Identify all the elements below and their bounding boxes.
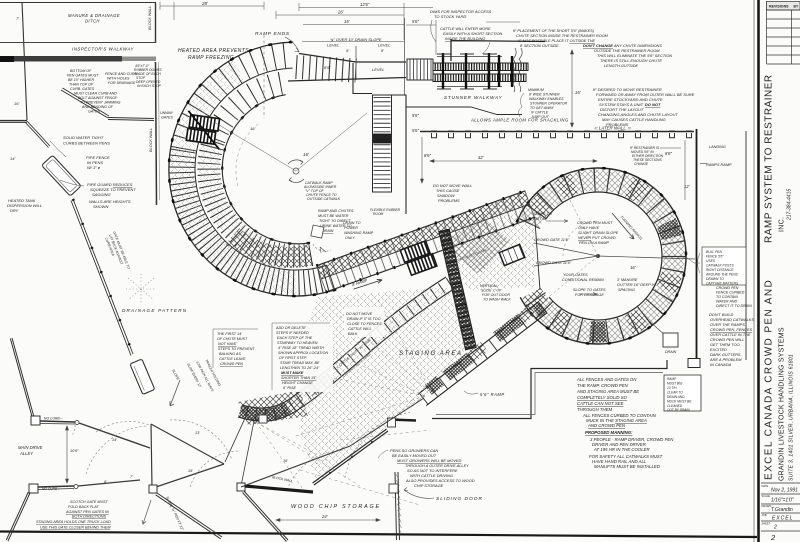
svg-text:CHANGE: CHANGE: [634, 162, 649, 166]
svg-text:ROOM: ROOM: [373, 212, 384, 216]
svg-text:DRAWN: DRAWN: [762, 504, 772, 508]
svg-text:IF PLACEMENT OF THE SHORT 5'6": IF PLACEMENT OF THE SHORT 5'6" (MAKES): [513, 29, 595, 33]
svg-text:BALK: BALK: [348, 332, 358, 336]
svg-text:OF CHUTE MUST: OF CHUTE MUST: [217, 337, 248, 341]
svg-text:SCALE: SCALE: [762, 494, 771, 498]
svg-text:7': 7': [130, 475, 133, 479]
svg-text:MUST BE WATER: MUST BE WATER: [318, 214, 349, 218]
svg-text:15': 15': [575, 90, 581, 95]
svg-text:AND CROWD PEN: AND CROWD PEN: [587, 423, 626, 428]
svg-text:GATES: GATES: [88, 110, 101, 114]
svg-text:GUTTER 16" DEEP 9': GUTTER 16" DEEP 9': [617, 283, 655, 287]
svg-text:LEVEL: LEVEL: [372, 67, 384, 72]
svg-text:DRAINAGE PATTERN: DRAINAGE PATTERN: [122, 308, 187, 313]
svg-text:16': 16': [303, 152, 309, 157]
svg-text:EACH STEP OF THE: EACH STEP OF THE: [277, 336, 313, 340]
svg-text:BULL PEN: BULL PEN: [706, 250, 723, 254]
svg-text:MANLIFTS MUST BE INSTALLED: MANLIFTS MUST BE INSTALLED: [594, 464, 660, 469]
svg-text:DIRECT IT TO DRAIN: DIRECT IT TO DRAIN: [716, 304, 752, 308]
svg-text:4" RISE 18" TREAD WIDTH: 4" RISE 18" TREAD WIDTH: [278, 346, 324, 350]
svg-text:5'6": 5'6": [412, 113, 419, 118]
svg-text:DO NOT MOVE: DO NOT MOVE: [346, 312, 373, 316]
svg-text:RAMP: RAMP: [667, 377, 677, 381]
svg-text:BOTH DIRECTIONS: BOTH DIRECTIONS: [72, 515, 107, 519]
svg-text:5'6": 5'6": [412, 128, 419, 133]
svg-text:DRAIN TO: DRAIN TO: [343, 221, 361, 225]
svg-text:32': 32': [478, 155, 484, 160]
svg-text:SUITE 3, 1401 SILVER, URBANA,: SUITE 3, 1401 SILVER, URBANA, ILLINOIS 6…: [789, 354, 795, 481]
svg-text:26': 26': [337, 10, 344, 15]
svg-text:BOTTOM OF: BOTTOM OF: [70, 69, 92, 73]
svg-text:16': 16': [630, 265, 636, 270]
svg-text:5'6" RAMP: 5'6" RAMP: [480, 392, 505, 397]
svg-text:CATTLE WILL ENTER MORE: CATTLE WILL ENTER MORE: [440, 27, 491, 31]
svg-text:PROBLEMS: PROBLEMS: [438, 198, 460, 203]
svg-text:DATE: DATE: [762, 484, 769, 488]
svg-text:LENGTHEN TO 26"-24": LENGTHEN TO 26"-24": [280, 366, 320, 370]
svg-text:BY: BY: [794, 5, 799, 9]
svg-text:7': 7': [16, 16, 19, 21]
svg-text:T.Grandin: T.Grandin: [771, 507, 793, 513]
svg-text:YOUR GATES: YOUR GATES: [563, 273, 588, 277]
svg-text:NO CURB ⌐: NO CURB ⌐: [44, 417, 63, 421]
svg-text:SLIDING DOOR: SLIDING DOOR: [436, 496, 483, 502]
svg-text:IF CATTLE: IF CATTLE: [531, 111, 549, 115]
svg-text:DRAIN AND: DRAIN AND: [667, 395, 685, 399]
svg-text:SHORTER THAN 15": SHORTER THAN 15": [281, 376, 317, 380]
svg-text:ALL FENCES AND GATES ON: ALL FENCES AND GATES ON: [576, 377, 637, 382]
svg-text:IN EACH STOP: IN EACH STOP: [137, 84, 162, 88]
svg-text:VERTICAL: VERTICAL: [480, 284, 498, 288]
svg-text:FOLD BACK FLAT: FOLD BACK FLAT: [68, 505, 99, 509]
svg-text:STUNNER WALKWAY: STUNNER WALKWAY: [444, 95, 503, 100]
svg-text:FENCE AND CURB: FENCE AND CURB: [105, 72, 137, 76]
svg-text:PROBLEMS: PROBLEMS: [606, 122, 629, 127]
svg-text:8' WIDE STUNNER: 8' WIDE STUNNER: [529, 93, 560, 97]
svg-text:SCOTCH GATE MUST: SCOTCH GATE MUST: [70, 500, 109, 504]
svg-text:THE FIRST 14': THE FIRST 14': [217, 332, 242, 336]
svg-text:GATES: GATES: [161, 116, 174, 120]
svg-text:MUCK MUST BE: MUCK MUST BE: [667, 400, 692, 404]
svg-text:OUTSIDE CATWALK: OUTSIDE CATWALK: [307, 197, 341, 201]
svg-text:14': 14': [10, 156, 15, 161]
svg-text:WALKWAY ENABLES: WALKWAY ENABLES: [529, 97, 564, 101]
svg-text:15': 15': [188, 469, 193, 473]
svg-text:COMPLETELY SOLID SO: COMPLETELY SOLID SO: [577, 395, 628, 400]
svg-text:LEVEL: LEVEL: [327, 43, 339, 48]
svg-text:CATTLE CAN NOT SEE: CATTLE CAN NOT SEE: [577, 401, 624, 406]
svg-text:2: 2: [770, 533, 776, 542]
svg-text:28': 28': [201, 1, 208, 6]
svg-text:NEVER PUT CROWD: NEVER PUT CROWD: [578, 236, 616, 240]
svg-text:FENCE 5'6": FENCE 5'6": [706, 255, 724, 259]
svg-text:CONDITIONAL REMAIN: CONDITIONAL REMAIN: [562, 278, 604, 282]
svg-text:13': 13': [195, 431, 200, 435]
svg-text:CATWALK POSTS: CATWALK POSTS: [706, 264, 735, 268]
svg-text:TO WASH WALK: TO WASH WALK: [483, 298, 511, 302]
svg-text:AROUND THE PENS: AROUND THE PENS: [705, 273, 738, 277]
svg-text:CAPTURE MATTERS: CAPTURE MATTERS: [706, 282, 739, 286]
svg-text:TO PREVENT JAMMING: TO PREVENT JAMMING: [80, 101, 121, 105]
svg-text:DRAWN TO: DRAWN TO: [706, 277, 724, 281]
svg-text:REVISIONS: REVISIONS: [769, 5, 789, 9]
svg-text:RAMPS RAMP: RAMPS RAMP: [706, 163, 732, 167]
svg-text:1/16"=1'0": 1/16"=1'0": [771, 498, 794, 504]
svg-text:WATER AND: WATER AND: [716, 300, 738, 304]
svg-text:THROUGH THEM: THROUGH THEM: [577, 407, 613, 412]
svg-text:SLIGHT DRAIN SLOPE: SLIGHT DRAIN SLOPE: [578, 231, 619, 235]
svg-text:FOR OUT DOOR: FOR OUT DOOR: [482, 293, 510, 297]
svg-text:BALKING AS: BALKING AS: [219, 352, 241, 356]
svg-text:SHEET: SHEET: [762, 522, 771, 526]
svg-text:FOR DRAINAGE: FOR DRAINAGE: [108, 81, 136, 85]
svg-text:HEIGHT CHANGE: HEIGHT CHANGE: [282, 381, 313, 385]
svg-text:RAMP ENDS: RAMP ENDS: [255, 31, 290, 37]
svg-text:8'6": 8'6": [324, 65, 331, 70]
svg-text:THAN TOP OF: THAN TOP OF: [69, 83, 94, 87]
svg-text:STUNNER OPERATOR: STUNNER OPERATOR: [530, 102, 568, 106]
svg-text:TUNNEL: TUNNEL: [376, 137, 392, 142]
svg-text:CATTLE WILL: CATTLE WILL: [348, 327, 372, 331]
svg-text:PROPOSED MANNING:: PROPOSED MANNING:: [585, 430, 633, 435]
svg-text:217-384-4415: 217-384-4415: [787, 189, 793, 221]
svg-text:24': 24': [321, 514, 328, 519]
svg-text:THE RAMP, CROWD PEN: THE RAMP, CROWD PEN: [577, 383, 629, 388]
svg-text:ONLY HAVE: ONLY HAVE: [578, 226, 600, 230]
svg-text:FENCE CURBED: FENCE CURBED: [716, 291, 745, 295]
svg-text:ALLOWS AMPLE ROOM FOR SHACKLIN: ALLOWS AMPLE ROOM FOR SHACKLING: [470, 118, 569, 123]
svg-text:SLIDE ⊂ UP: SLIDE ⊂ UP: [481, 289, 502, 293]
svg-text:BLOCK WALL: BLOCK WALL: [149, 128, 153, 152]
svg-text:STAIRWAY TO HEAVEN: STAIRWAY TO HEAVEN: [277, 341, 318, 345]
svg-text:CROWD PEN MUST: CROWD PEN MUST: [577, 221, 613, 225]
svg-text:8' SECTION OUTSIDE.: 8' SECTION OUTSIDE.: [520, 44, 560, 48]
svg-text:CLOSE TO FENCES: CLOSE TO FENCES: [347, 322, 382, 326]
svg-text:AGAINST PEN GATES IN: AGAINST PEN GATES IN: [65, 510, 109, 514]
svg-text:WITH HOLES: WITH HOLES: [107, 77, 130, 81]
svg-text:SHOWN: SHOWN: [93, 204, 108, 209]
svg-text:ONLY: ONLY: [345, 236, 355, 240]
svg-text:USE THIS GATE CLOSER BEHIND TH: USE THIS GATE CLOSER BEHIND THEM: [40, 526, 111, 530]
svg-text:SLOPE TO GATES: SLOPE TO GATES: [573, 288, 606, 292]
svg-text:GRANDIN LIVESTOCK HANDLING: GRANDIN LIVESTOCK HANDLING SYSTEMS: [779, 327, 786, 481]
svg-text:14': 14': [112, 438, 117, 442]
svg-text:8'6": 8'6": [665, 151, 672, 156]
svg-text:AND BENDING OF: AND BENDING OF: [81, 105, 114, 109]
svg-text:MANURE & DRAINAGE: MANURE & DRAINAGE: [68, 13, 120, 18]
svg-text:WASHING RAMP: WASHING RAMP: [344, 231, 374, 235]
svg-text:JOB: JOB: [762, 513, 767, 517]
svg-text:16': 16': [250, 126, 255, 131]
svg-text:CROWD GATE 11'6": CROWD GATE 11'6": [534, 238, 570, 242]
svg-text:3' MANURE: 3' MANURE: [617, 278, 638, 282]
svg-text:CURB. GATES: CURB. GATES: [70, 87, 95, 91]
svg-text:UNWAY: UNWAY: [160, 111, 174, 115]
svg-text:TO STOCK YARD: TO STOCK YARD: [434, 14, 466, 19]
svg-text:PEN GATES MUST: PEN GATES MUST: [67, 74, 99, 78]
svg-text:RAMP SYSTEM TO RESTRAINER: RAMP SYSTEM TO RESTRAINER: [764, 74, 775, 243]
svg-text:CROWD PEN: CROWD PEN: [716, 286, 739, 290]
svg-text:RAMP AND CHUTES: RAMP AND CHUTES: [318, 209, 354, 213]
svg-text:6': 6': [104, 480, 107, 484]
svg-text:RAMP FREEZING: RAMP FREEZING: [188, 55, 234, 61]
svg-text:INSPECTOR'S WALKWAY: INSPECTOR'S WALKWAY: [72, 47, 135, 52]
svg-text:EASILY WITH A SHORT SECTION: EASILY WITH A SHORT SECTION: [443, 32, 502, 36]
svg-text:12'6": 12'6": [360, 2, 370, 7]
svg-text:FOR DRAINAGE: FOR DRAINAGE: [575, 293, 604, 297]
svg-text:LEVEL: LEVEL: [378, 43, 390, 48]
svg-text:CURBS BETWEEN PENS: CURBS BETWEEN PENS: [63, 141, 110, 146]
svg-text:PEN ON A RAMP: PEN ON A RAMP: [579, 241, 609, 245]
svg-text:SHOWN APPROX LOCATION: SHOWN APPROX LOCATION: [278, 351, 328, 355]
svg-text:BOLT AGAINST FENCE: BOLT AGAINST FENCE: [78, 96, 118, 100]
svg-text:SOLID WATER TIGHT: SOLID WATER TIGHT: [63, 135, 104, 140]
svg-text:SPACING: SPACING: [618, 288, 635, 292]
svg-text:SLOPE TO: SLOPE TO: [533, 212, 552, 216]
svg-text:16': 16': [14, 101, 19, 106]
svg-text:CLEAR TO: CLEAR TO: [667, 391, 683, 395]
svg-text:AT 195 HR IN THE COOLER: AT 195 HR IN THE COOLER: [593, 447, 650, 452]
svg-text:DRAIN: DRAIN: [665, 350, 677, 354]
svg-text:STAIR TREAD MAY, BE: STAIR TREAD MAY, BE: [280, 361, 320, 365]
svg-text:10 T/H: 10 T/H: [667, 386, 677, 390]
svg-text:CATTLE LEAVE: CATTLE LEAVE: [219, 357, 246, 361]
svg-text:OF FIRST STEP: OF FIRST STEP: [279, 356, 307, 360]
svg-text:CHIP STORAGE: CHIP STORAGE: [414, 483, 444, 488]
svg-text:2: 2: [773, 525, 777, 531]
svg-text:STEPS IF NEEDED: STEPS IF NEEDED: [276, 331, 309, 335]
svg-text:16': 16': [283, 459, 288, 463]
svg-text:EXCEL: EXCEL: [772, 516, 793, 522]
svg-text:CROWD GATE 11'6": CROWD GATE 11'6": [536, 261, 572, 265]
svg-text:STAGING AREA HOLDS ONE TRUCK L: STAGING AREA HOLDS ONE TRUCK LOAD: [36, 520, 111, 524]
svg-text:OUT BY DRAIN: OUT BY DRAIN: [667, 408, 690, 412]
svg-text:MUST CLEAR CURB AND: MUST CLEAR CURB AND: [74, 92, 117, 96]
svg-text:CHUTE SECTION INSIDE THE RESTR: CHUTE SECTION INSIDE THE RESTRAINER ROOM: [516, 34, 609, 38]
svg-text:WOOD CHIP STORAGE: WOOD CHIP STORAGE: [291, 504, 381, 510]
svg-text:ALLEY: ALLEY: [19, 451, 34, 456]
svg-text:CROWD PEN: CROWD PEN: [220, 362, 243, 366]
svg-text:LENGTH OUTSIDE: LENGTH OUTSIDE: [604, 63, 639, 68]
svg-text:POWER: POWER: [344, 226, 358, 230]
svg-text:NOT HAVE: NOT HAVE: [218, 342, 237, 346]
svg-text:DRAIN IF IT IS TOO: DRAIN IF IT IS TOO: [347, 317, 381, 321]
svg-text:6" RISE: 6" RISE: [283, 386, 297, 390]
svg-text:Nov 2, 1991: Nov 2, 1991: [771, 488, 798, 494]
svg-text:10'6": 10'6": [70, 448, 79, 453]
svg-text:MAIN DRIVE: MAIN DRIVE: [18, 445, 43, 450]
svg-text:BE 10" HIGHER: BE 10" HIGHER: [68, 78, 94, 82]
svg-text:JUMP OUT: JUMP OUT: [530, 115, 550, 119]
svg-text:HEATED AREA PREVENTS: HEATED AREA PREVENTS: [178, 48, 249, 54]
svg-text:MUST MAKE: MUST MAKE: [281, 371, 304, 375]
svg-text:MUST BIG: MUST BIG: [667, 382, 683, 386]
svg-text:RIGHT DISTANCE: RIGHT DISTANCE: [706, 268, 734, 272]
svg-text:15': 15': [344, 19, 350, 24]
svg-text:SAGGING: SAGGING: [92, 192, 111, 197]
svg-text:TO GET AWAY: TO GET AWAY: [530, 106, 554, 110]
svg-text:5'6": 5'6": [412, 19, 419, 24]
svg-text:MINIMUM: MINIMUM: [528, 88, 544, 92]
svg-text:ADD OR DELETE: ADD OR DELETE: [275, 326, 306, 330]
svg-text:INC.: INC.: [779, 217, 786, 232]
svg-text:USES: USES: [706, 259, 716, 263]
svg-text:LANDING: LANDING: [709, 145, 726, 149]
svg-text:STEPS TO PREVENT: STEPS TO PREVENT: [218, 347, 255, 351]
svg-text:8': 8': [381, 48, 384, 53]
svg-text:EXCEL CANADA CROWD PEN AND: EXCEL CANADA CROWD PEN AND: [764, 279, 775, 480]
svg-text:TO CONTAIN: TO CONTAIN: [716, 295, 738, 299]
svg-text:9': 9': [346, 48, 349, 53]
svg-text:DITCH: DITCH: [85, 19, 100, 24]
svg-text:IN CANADA: IN CANADA: [710, 362, 732, 367]
svg-text:AND STAGING AREA MUST BE: AND STAGING AREA MUST BE: [576, 389, 639, 394]
svg-text:W/ 3" ø: W/ 3" ø: [87, 165, 101, 170]
svg-text:BLOCK WALL: BLOCK WALL: [148, 6, 152, 30]
svg-text:INSIDE THE BUILDING: INSIDE THE BUILDING: [445, 37, 485, 41]
svg-text:DRY: DRY: [10, 208, 19, 213]
svg-text:8'6": 8'6": [424, 153, 431, 158]
